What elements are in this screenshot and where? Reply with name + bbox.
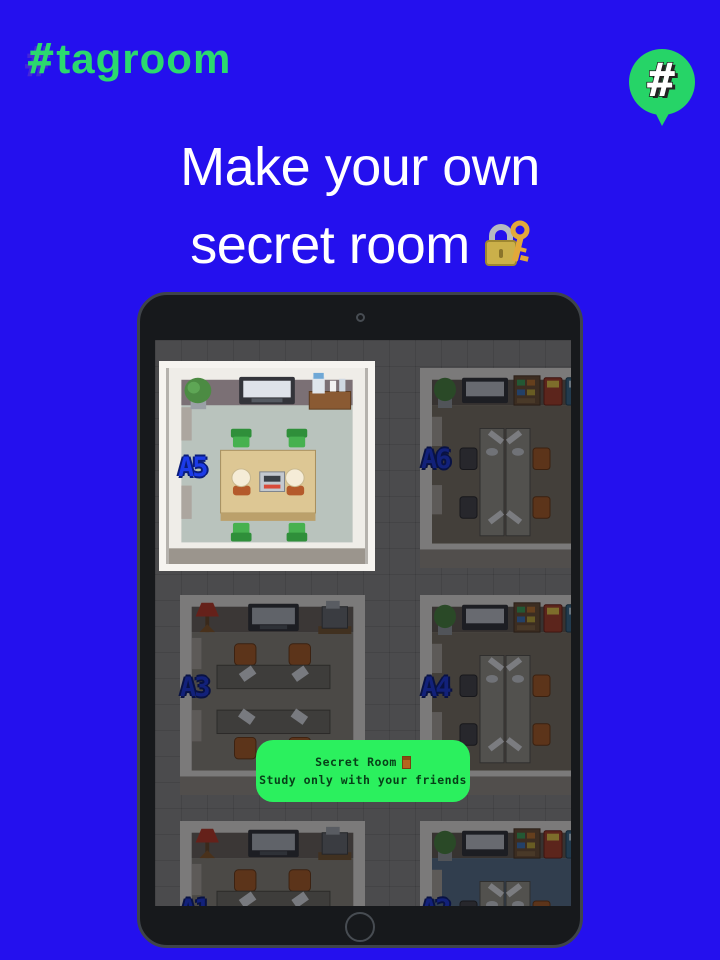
tablet-camera-icon [356,313,365,322]
hash-glyph: # [28,34,54,83]
room-a3-label: A3 [180,672,209,703]
room-a5-label: A5 [178,452,207,483]
lock-with-key-icon [480,212,530,262]
secret-room-tooltip: Secret Room Study only with your friends [256,740,470,802]
app-name: tagroom [56,35,231,82]
game-screen: A6 A3 A4 A1 A2 A5 Secret Room Study [155,340,571,906]
tooltip-title: Secret Room [315,755,411,769]
room-a2-label: A2 [421,894,450,906]
room-a4-label: A4 [421,672,450,703]
room-a5-highlight-frame[interactable]: A5 [159,361,375,571]
page-title: Make your own secret room [0,128,720,284]
svg-text:#: # [647,53,675,107]
tablet-mockup: A6 A3 A4 A1 A2 A5 Secret Room Study [137,292,583,948]
tooltip-subtitle: Study only with your friends [259,773,467,787]
hash-speech-bubble-icon: # # [626,48,698,126]
title-line-2: secret room [0,206,720,284]
title-line-1: Make your own [0,128,720,206]
door-icon [402,756,411,769]
tablet-home-button [345,912,375,942]
app-wordmark: #tagroom [28,34,231,83]
room-a6-label: A6 [421,444,450,475]
room-a1-label: A1 [180,894,209,906]
